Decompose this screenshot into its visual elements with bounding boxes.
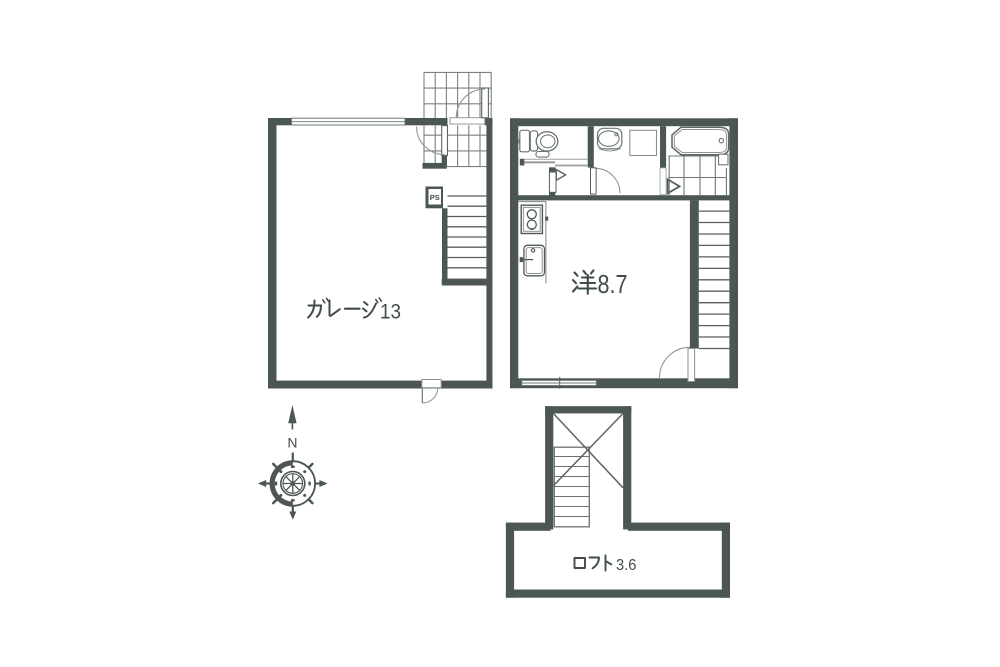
svg-text:N: N [287, 435, 297, 451]
svg-text:8.7: 8.7 [598, 271, 628, 299]
svg-text:3.6: 3.6 [616, 557, 636, 574]
svg-text:13: 13 [380, 301, 401, 324]
svg-text:PS: PS [430, 193, 440, 202]
